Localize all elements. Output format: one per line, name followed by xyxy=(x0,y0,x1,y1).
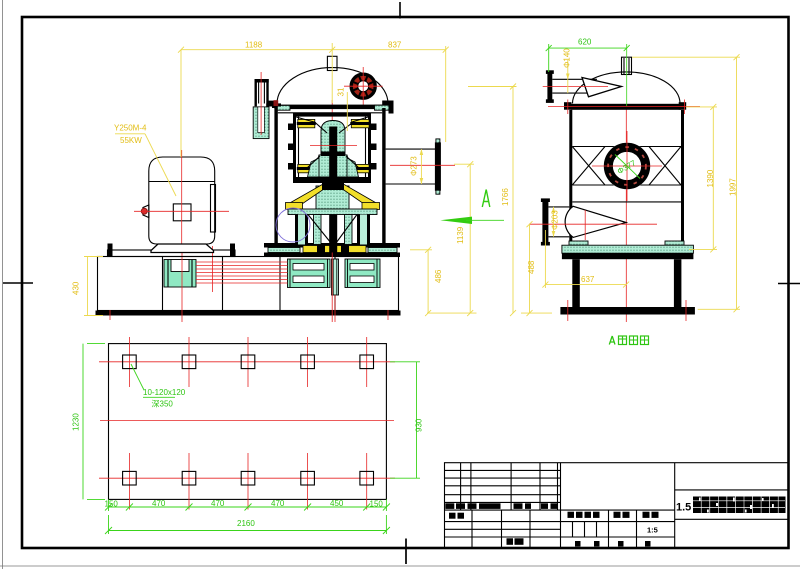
svg-text:637: 637 xyxy=(581,275,595,284)
svg-text:1139: 1139 xyxy=(456,226,465,244)
svg-text:1230: 1230 xyxy=(72,413,81,431)
svg-text:深350: 深350 xyxy=(152,400,174,409)
svg-text:1390: 1390 xyxy=(706,169,715,187)
svg-text:470: 470 xyxy=(271,499,285,508)
svg-text:1:5: 1:5 xyxy=(647,526,658,535)
svg-text:31: 31 xyxy=(337,87,346,96)
svg-text:430: 430 xyxy=(72,281,81,295)
svg-text:620: 620 xyxy=(578,38,592,47)
svg-text:150: 150 xyxy=(370,500,384,509)
svg-text:10-120x120: 10-120x120 xyxy=(143,388,186,397)
svg-text:470: 470 xyxy=(211,499,225,508)
svg-text:486: 486 xyxy=(434,269,443,283)
svg-text:488: 488 xyxy=(527,260,536,274)
svg-text:1.5: 1.5 xyxy=(676,502,691,514)
svg-text:Φ273: Φ273 xyxy=(410,156,419,176)
svg-text:837: 837 xyxy=(388,41,402,50)
svg-text:55KW: 55KW xyxy=(120,136,142,145)
svg-text:Φ140: Φ140 xyxy=(563,48,572,68)
svg-text:Φ203: Φ203 xyxy=(551,210,560,230)
svg-text:Y250M-4: Y250M-4 xyxy=(114,124,147,133)
svg-text:930: 930 xyxy=(415,418,424,432)
svg-text:1766: 1766 xyxy=(501,188,510,206)
svg-text:1997: 1997 xyxy=(729,178,738,196)
svg-text:1188: 1188 xyxy=(245,41,263,50)
svg-text:470: 470 xyxy=(152,499,166,508)
svg-text:2160: 2160 xyxy=(237,519,255,528)
svg-text:150: 150 xyxy=(105,500,119,509)
svg-text:450: 450 xyxy=(330,499,344,508)
